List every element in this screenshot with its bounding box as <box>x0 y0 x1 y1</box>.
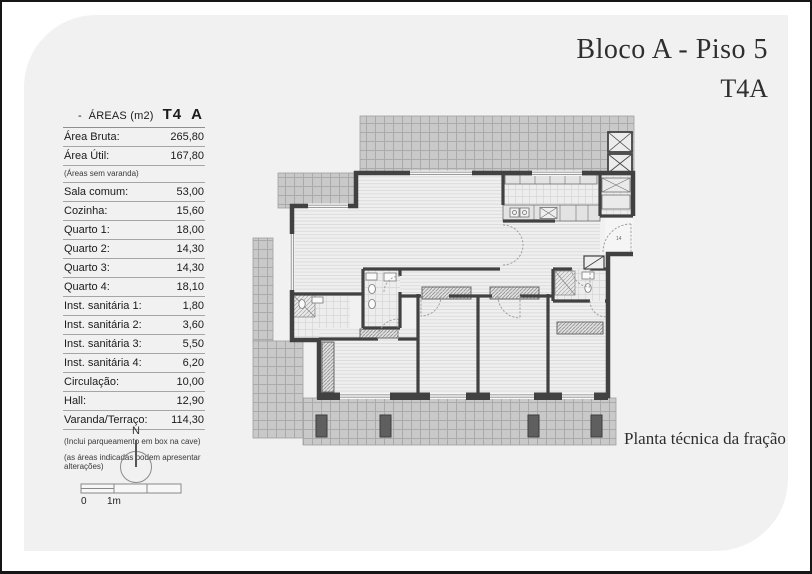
row-label: Sala comum: <box>64 186 128 198</box>
scale-zero-label: 0 <box>81 496 87 507</box>
row-value: 167,80 <box>170 150 204 162</box>
row-label: Inst. sanitária 1: <box>64 300 142 312</box>
floor-plan-drawing: 14 <box>250 106 642 452</box>
table-row: Quarto 1:18,00 <box>63 221 205 240</box>
bedroom4-floor <box>548 301 608 396</box>
row-value: 3,60 <box>183 319 204 331</box>
table-row: Quarto 4:18,10 <box>63 278 205 297</box>
scale-bar: 0 1m <box>80 483 192 507</box>
row-value: 1,80 <box>183 300 204 312</box>
north-label: N <box>132 425 140 437</box>
scale-meter-label: 1m <box>107 496 121 507</box>
row-label: Inst. sanitária 4: <box>64 357 142 369</box>
row-value: 18,10 <box>176 281 204 293</box>
table-row: Quarto 2:14,30 <box>63 240 205 259</box>
title-block: Bloco A - Piso 5 T4A <box>576 36 768 102</box>
row-label: (Áreas sem varanda) <box>64 169 139 178</box>
row-label: Cozinha: <box>64 205 107 217</box>
row-label: Inst. sanitária 2: <box>64 319 142 331</box>
table-row: Circulação:10,00 <box>63 373 205 392</box>
areas-title: ÁREAS (m2) <box>89 110 154 122</box>
bedroom3-floor <box>478 285 548 396</box>
row-value: 265,80 <box>170 131 204 143</box>
row-value: 15,60 <box>176 205 204 217</box>
row-value: 14,30 <box>176 243 204 255</box>
table-row: Cozinha:15,60 <box>63 202 205 221</box>
row-label: Área Bruta: <box>64 131 120 143</box>
row-label: Quarto 3: <box>64 262 110 274</box>
header-dash: - <box>78 110 82 122</box>
row-value: 14,30 <box>176 262 204 274</box>
table-row: Sala comum:53,00 <box>63 183 205 202</box>
row-value: 5,50 <box>183 338 204 350</box>
unit-type: T4 <box>163 106 183 123</box>
table-row: Quarto 3:14,30 <box>63 259 205 278</box>
bedroom2-floor <box>418 285 478 396</box>
table-row: Inst. sanitária 2:3,60 <box>63 316 205 335</box>
page-subtitle: T4A <box>576 76 768 102</box>
row-value: 6,20 <box>183 357 204 369</box>
fraction-letter: A <box>191 106 202 123</box>
table-row: Inst. sanitária 3:5,50 <box>63 335 205 354</box>
areas-table-header: - ÁREAS (m2) T4 A <box>63 104 205 128</box>
row-value: 12,90 <box>176 395 204 407</box>
row-value: 18,00 <box>176 224 204 236</box>
row-label: Circulação: <box>64 376 119 388</box>
entry-door-label: 14 <box>616 236 622 242</box>
plan-caption: Planta técnica da fração <box>624 429 786 449</box>
entry-vestibule-floor <box>605 216 633 254</box>
table-row: Inst. sanitária 1:1,80 <box>63 297 205 316</box>
table-row: Inst. sanitária 4:6,20 <box>63 354 205 373</box>
page-title: Bloco A - Piso 5 <box>576 36 768 64</box>
elevator-shafts <box>608 132 632 173</box>
areas-table: - ÁREAS (m2) T4 A Área Bruta:265,80 Área… <box>63 104 205 471</box>
row-label: Área Útil: <box>64 150 109 162</box>
table-note-row: (Áreas sem varanda) <box>63 166 205 183</box>
row-label: Quarto 2: <box>64 243 110 255</box>
row-label: Hall: <box>64 395 86 407</box>
table-row: Área Útil:167,80 <box>63 147 205 166</box>
row-label: Quarto 4: <box>64 281 110 293</box>
row-value: 10,00 <box>176 376 204 388</box>
row-label: Quarto 1: <box>64 224 110 236</box>
row-value: 53,00 <box>176 186 204 198</box>
row-label: Inst. sanitária 3: <box>64 338 142 350</box>
row-value: 114,30 <box>171 414 204 426</box>
table-row: Área Bruta:265,80 <box>63 128 205 147</box>
table-row: Hall:12,90 <box>63 392 205 411</box>
